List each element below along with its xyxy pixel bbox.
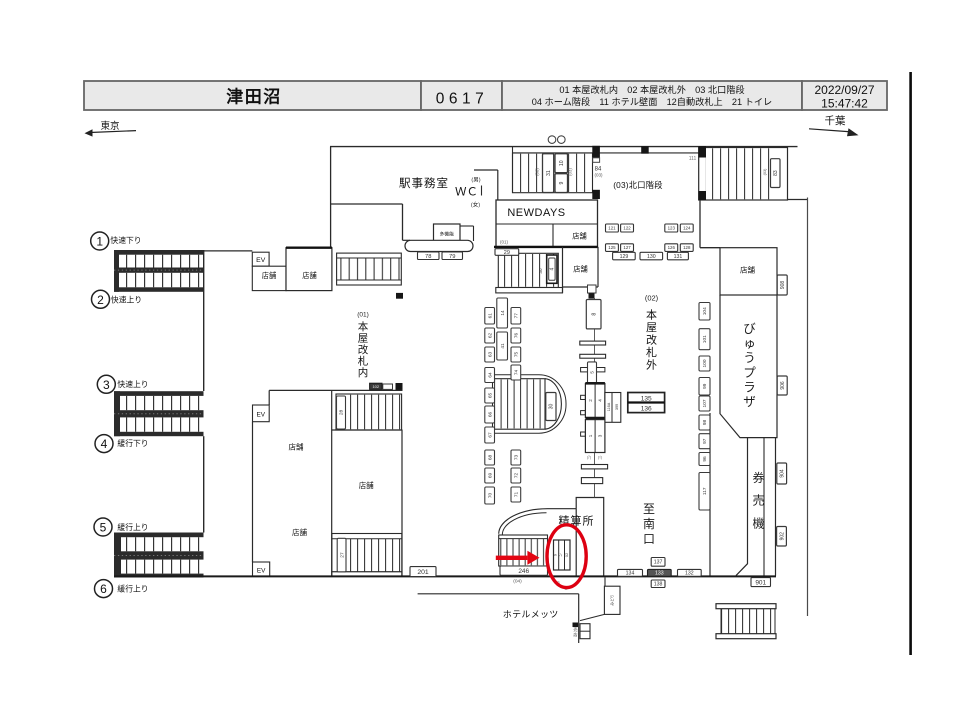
- svg-text:4: 4: [101, 437, 108, 451]
- svg-text:3: 3: [598, 434, 603, 437]
- svg-text:68: 68: [487, 455, 493, 461]
- svg-text:店舗: 店舗: [740, 265, 755, 275]
- svg-text:30: 30: [549, 404, 555, 410]
- svg-text:快速上り: 快速上り: [117, 379, 148, 389]
- svg-text:8: 8: [592, 313, 598, 316]
- svg-text:906: 906: [780, 381, 786, 390]
- svg-text:246: 246: [518, 568, 529, 575]
- svg-text:改: 改: [358, 343, 369, 356]
- svg-text:137: 137: [654, 560, 663, 566]
- svg-text:121: 121: [608, 226, 616, 231]
- svg-text:65: 65: [487, 393, 493, 399]
- svg-text:口: 口: [643, 532, 655, 546]
- svg-text:104: 104: [702, 307, 708, 315]
- svg-text:南: 南: [643, 516, 655, 531]
- svg-text:01 本屋改札内 02 本屋改札外 03 北口階段: 01 本屋改札内 02 本屋改札外 03 北口階段: [559, 84, 744, 95]
- svg-text:千葉: 千葉: [825, 114, 846, 127]
- svg-text:(02): (02): [645, 294, 659, 303]
- svg-text:ホテルメッツ: ホテルメッツ: [503, 609, 559, 619]
- svg-text:78: 78: [425, 254, 431, 260]
- svg-text:28: 28: [339, 410, 345, 416]
- svg-text:129: 129: [620, 254, 629, 260]
- svg-text:店: 店: [573, 631, 577, 638]
- svg-text:至: 至: [643, 502, 655, 516]
- svg-text:び: び: [743, 322, 756, 336]
- svg-text:99: 99: [702, 383, 708, 389]
- svg-text:69: 69: [487, 473, 493, 479]
- svg-text:店舗: 店舗: [572, 232, 586, 241]
- svg-text:売: 売: [752, 493, 764, 508]
- svg-text:4: 4: [550, 268, 556, 271]
- svg-text:14: 14: [500, 310, 506, 316]
- svg-text:74: 74: [514, 370, 520, 376]
- svg-text:ン: ン: [558, 553, 563, 557]
- svg-text:135: 135: [641, 395, 652, 402]
- svg-text:う: う: [743, 351, 756, 365]
- svg-text:70: 70: [487, 493, 493, 499]
- svg-text:2: 2: [97, 293, 104, 307]
- svg-text:136: 136: [641, 406, 652, 413]
- svg-text:緩行下り: 緩行下り: [117, 438, 148, 448]
- svg-text:76: 76: [514, 333, 520, 339]
- svg-text:本: 本: [358, 320, 369, 333]
- svg-text:79: 79: [449, 254, 455, 260]
- svg-text:107: 107: [702, 399, 708, 407]
- svg-text:131: 131: [674, 254, 683, 260]
- svg-text:130: 130: [647, 254, 656, 260]
- svg-text:77: 77: [514, 313, 520, 319]
- svg-text:みどり: みどり: [610, 594, 615, 605]
- svg-text:96: 96: [702, 456, 708, 462]
- svg-text:内: 内: [358, 366, 369, 379]
- svg-text:125: 125: [608, 245, 616, 250]
- svg-text:66: 66: [487, 412, 493, 418]
- svg-text:2: 2: [588, 399, 593, 402]
- svg-text:123: 123: [668, 226, 676, 231]
- svg-text:NEWDAYS: NEWDAYS: [507, 207, 565, 219]
- svg-text:4: 4: [598, 399, 603, 402]
- svg-text:(ｱ): (ｱ): [587, 455, 592, 460]
- svg-text:(03)北口階段: (03)北口階段: [613, 180, 663, 190]
- svg-text:128: 128: [683, 245, 691, 250]
- svg-text:67: 67: [487, 432, 493, 438]
- svg-text:127: 127: [623, 245, 631, 250]
- svg-text:41: 41: [500, 343, 506, 349]
- svg-text:3: 3: [103, 378, 110, 392]
- svg-text:122: 122: [623, 226, 631, 231]
- svg-text:126: 126: [668, 245, 676, 250]
- svg-text:6: 6: [100, 582, 107, 596]
- svg-text:店舗: 店舗: [262, 271, 276, 280]
- svg-text:EV: EV: [256, 257, 266, 264]
- svg-text:店舗: 店舗: [302, 271, 316, 280]
- svg-text:プ: プ: [743, 366, 756, 380]
- svg-text:117: 117: [702, 487, 708, 495]
- svg-text:100: 100: [702, 359, 708, 367]
- svg-text:0617: 0617: [436, 91, 488, 108]
- svg-text:102: 102: [372, 384, 379, 389]
- svg-text:201: 201: [417, 569, 429, 576]
- svg-text:901: 901: [755, 579, 766, 586]
- svg-text:10: 10: [559, 160, 565, 166]
- svg-text:72: 72: [514, 473, 520, 479]
- svg-text:緩行上り: 緩行上り: [117, 522, 148, 532]
- svg-text:73: 73: [514, 455, 520, 461]
- svg-text:133: 133: [655, 571, 664, 577]
- svg-text:97: 97: [702, 438, 708, 444]
- svg-text:店舗: 店舗: [289, 442, 304, 452]
- svg-text:5: 5: [100, 521, 107, 535]
- svg-text:75: 75: [514, 352, 520, 358]
- svg-text:124: 124: [683, 226, 691, 231]
- svg-text:快速下り: 快速下り: [110, 235, 141, 245]
- svg-text:本: 本: [646, 308, 657, 322]
- svg-text:札: 札: [646, 346, 657, 359]
- svg-text:(男): (男): [471, 177, 480, 184]
- svg-text:(03): (03): [568, 168, 573, 176]
- svg-text:27: 27: [339, 552, 345, 558]
- svg-text:外: 外: [646, 359, 657, 372]
- svg-text:(04): (04): [513, 579, 522, 585]
- svg-text:(01): (01): [500, 240, 509, 245]
- svg-text:(女): (女): [471, 201, 480, 209]
- svg-text:駅事務室: 駅事務室: [399, 176, 449, 190]
- svg-text:902: 902: [779, 532, 785, 541]
- svg-text:9: 9: [559, 182, 565, 185]
- svg-text:(03): (03): [763, 168, 767, 175]
- svg-text:71: 71: [514, 492, 520, 498]
- svg-text:61: 61: [487, 313, 493, 319]
- svg-text:29: 29: [504, 250, 510, 256]
- svg-text:ラ: ラ: [743, 380, 756, 394]
- svg-text:ＷＣ: ＷＣ: [455, 187, 478, 199]
- svg-text:津田沼: 津田沼: [226, 87, 282, 107]
- svg-text:138: 138: [654, 582, 663, 588]
- svg-text:132: 132: [685, 571, 694, 577]
- svg-text:東京: 東京: [100, 120, 119, 132]
- svg-text:ゅ: ゅ: [743, 337, 756, 351]
- svg-text:83: 83: [773, 170, 779, 176]
- svg-text:02: 02: [564, 552, 569, 557]
- svg-text:04 ホーム階段 11 ホテル壁面 12自動改札上 21 ト: 04 ホーム階段 11 ホテル壁面 12自動改札上 21 トイレ: [532, 96, 773, 107]
- svg-text:904: 904: [780, 469, 786, 478]
- svg-text:(03): (03): [594, 172, 603, 177]
- svg-text:101: 101: [702, 335, 708, 343]
- svg-text:31: 31: [546, 170, 552, 176]
- svg-text:63: 63: [487, 352, 493, 358]
- svg-text:1: 1: [588, 434, 593, 437]
- svg-text:EV: EV: [257, 412, 266, 419]
- svg-text:券: 券: [752, 470, 764, 485]
- svg-text:134: 134: [626, 571, 635, 577]
- svg-text:機: 機: [752, 515, 764, 530]
- svg-text:30: 30: [538, 268, 543, 274]
- svg-text:116A: 116A: [607, 402, 611, 411]
- svg-text:1: 1: [96, 235, 103, 249]
- svg-text:店舗: 店舗: [292, 527, 307, 537]
- svg-text:(08): (08): [535, 168, 540, 176]
- svg-text:111: 111: [689, 156, 697, 162]
- svg-text:改: 改: [646, 333, 657, 347]
- svg-text:5: 5: [590, 371, 595, 374]
- svg-text:98: 98: [702, 420, 708, 426]
- svg-text:62: 62: [487, 333, 493, 339]
- svg-text:屋: 屋: [358, 332, 369, 344]
- svg-text:64: 64: [487, 372, 493, 378]
- svg-text:EV: EV: [257, 567, 266, 574]
- svg-text:札: 札: [358, 355, 369, 368]
- svg-text:多機能: 多機能: [439, 231, 454, 238]
- svg-text:15:47:42: 15:47:42: [821, 97, 868, 111]
- svg-text:ザ: ザ: [743, 395, 756, 409]
- svg-text:快速上り: 快速上り: [111, 294, 142, 304]
- svg-text:緩行上り: 緩行上り: [117, 584, 148, 594]
- svg-text:(ｲ): (ｲ): [598, 456, 603, 460]
- svg-text:908: 908: [780, 281, 786, 290]
- svg-text:屋: 屋: [646, 321, 657, 334]
- svg-text:店舗: 店舗: [359, 480, 374, 490]
- svg-text:(01): (01): [357, 312, 369, 319]
- svg-text:店舗: 店舗: [573, 265, 587, 274]
- svg-text:399: 399: [615, 404, 619, 410]
- svg-text:2022/09/27: 2022/09/27: [814, 83, 874, 97]
